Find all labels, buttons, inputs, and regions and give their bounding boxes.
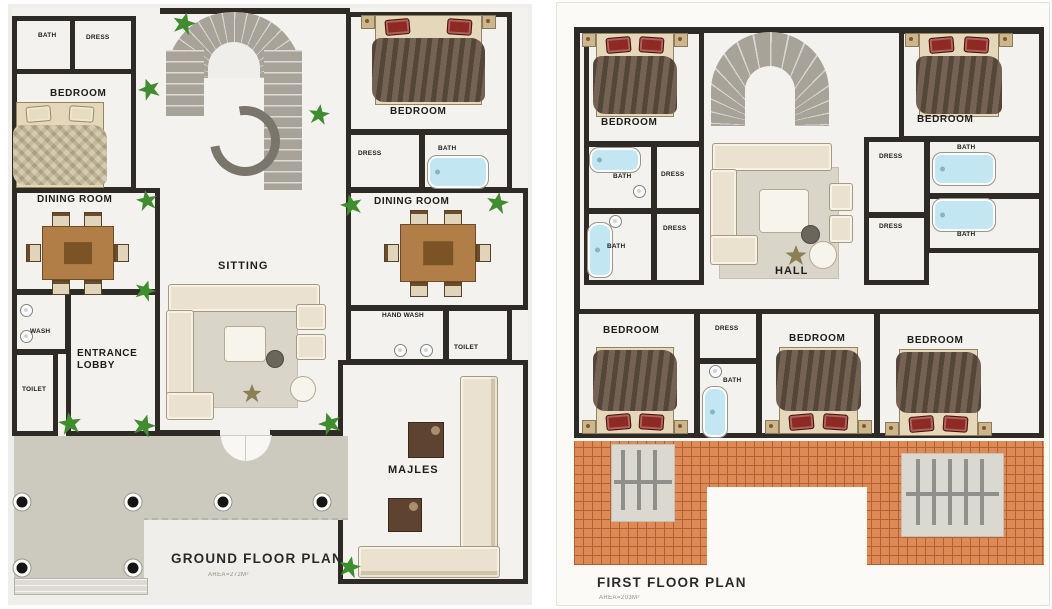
room-label-dress: DRESS — [715, 325, 738, 332]
room-dress-right — [346, 130, 424, 192]
room-dress-top-left — [70, 16, 136, 74]
room-label-bath: BATH — [607, 243, 625, 250]
pillow-icon — [384, 18, 410, 36]
room-label-hand-wash: HAND WASH — [382, 312, 424, 319]
room-label-hall: HALL — [775, 265, 808, 277]
pillow-icon — [638, 36, 664, 54]
pillow-icon — [605, 413, 631, 431]
room-dress-left-2 — [652, 209, 704, 285]
first-floor-plan: BEDROOM BATH DRESS BATH DRESS HALL BEDRO… — [556, 2, 1050, 606]
floor-plans-page: BATH DRESS BEDROOM DINING ROOM WASH ENTR… — [0, 0, 1052, 609]
bed-icon — [596, 33, 674, 117]
pillow-icon — [605, 36, 631, 54]
ground-floor-plan: BATH DRESS BEDROOM DINING ROOM WASH ENTR… — [8, 4, 532, 605]
staircase-icon — [711, 32, 829, 128]
sink-icon — [633, 185, 646, 198]
column — [125, 494, 142, 511]
room-label-dining-room: DINING ROOM — [374, 196, 450, 207]
toilet-icon — [633, 231, 650, 244]
bathtub-icon — [588, 223, 612, 277]
nightstand-icon — [582, 420, 596, 434]
pillow-icon — [446, 18, 472, 36]
first-floor-title: FIRST FLOOR PLAN — [597, 575, 747, 590]
pillow-icon — [908, 415, 934, 433]
room-label-bedroom: BEDROOM — [601, 117, 657, 128]
room-label-dress: DRESS — [86, 34, 109, 41]
railing-crossbar-icon — [906, 492, 999, 496]
nightstand-icon — [978, 422, 992, 436]
ground-floor-title: GROUND FLOOR PLAN — [171, 551, 343, 566]
room-label-bedroom: BEDROOM — [907, 335, 963, 346]
bed-icon — [899, 349, 978, 436]
nightstand-icon — [999, 33, 1013, 47]
column — [14, 560, 31, 577]
bed-icon — [375, 15, 482, 105]
blanket-icon — [916, 56, 1002, 114]
toilet-icon — [20, 48, 37, 61]
pillow-icon — [638, 413, 664, 431]
sink-icon — [709, 365, 722, 378]
pillow-icon — [928, 36, 954, 54]
bed-icon — [16, 102, 104, 188]
porch-left-wing — [14, 436, 144, 578]
nightstand-icon — [361, 15, 375, 29]
room-label-bedroom: BEDROOM — [50, 88, 106, 99]
column — [314, 494, 331, 511]
room-label-dress: DRESS — [358, 150, 381, 157]
nightstand-icon — [885, 422, 899, 436]
bathtub-icon — [703, 387, 727, 437]
blanket-icon — [776, 350, 861, 411]
column — [14, 494, 31, 511]
toilet-icon — [472, 324, 489, 337]
nightstand-icon — [582, 33, 596, 47]
nightstand-icon — [765, 420, 779, 434]
pillow-icon — [963, 36, 989, 54]
sink-icon — [20, 304, 33, 317]
room-wash — [12, 290, 70, 354]
bathtub-icon — [428, 156, 488, 188]
blanket-icon — [372, 38, 485, 102]
pillow-icon — [25, 105, 51, 123]
toilet-icon — [999, 151, 1016, 164]
sink-icon — [609, 215, 622, 228]
railing-crossbar-icon — [614, 480, 671, 484]
room-label-bath: BATH — [438, 145, 456, 152]
first-floor-area: AREA=203M² — [599, 595, 640, 601]
room-label-sitting: SITTING — [218, 260, 268, 272]
nightstand-icon — [858, 420, 872, 434]
sink-icon — [420, 344, 433, 357]
blanket-icon — [593, 56, 677, 114]
room-label-bedroom: BEDROOM — [390, 106, 446, 117]
bed-icon — [779, 347, 858, 434]
room-bath-top-left — [12, 16, 75, 74]
room-label-dress: DRESS — [879, 223, 902, 230]
nightstand-icon — [482, 15, 496, 29]
pillow-icon — [822, 413, 848, 431]
blanket-icon — [593, 350, 677, 411]
room-label-dress: DRESS — [661, 171, 684, 178]
room-dress-middle — [695, 309, 761, 363]
blanket-icon — [13, 125, 107, 185]
bed-icon — [596, 347, 674, 434]
room-dress-right-1 — [864, 137, 929, 217]
sink-icon — [394, 344, 407, 357]
pillow-icon — [68, 105, 94, 123]
toilet-icon — [593, 187, 610, 200]
room-label-dress: DRESS — [663, 225, 686, 232]
room-label-bath: BATH — [723, 377, 741, 384]
staircase-icon — [166, 6, 306, 190]
pillow-icon — [788, 413, 814, 431]
balcony-railing — [611, 444, 675, 522]
column — [125, 560, 142, 577]
bathtub-icon — [933, 153, 995, 185]
nightstand-icon — [905, 33, 919, 47]
toilet-icon — [19, 398, 36, 411]
balcony-railing — [901, 453, 1004, 537]
toilet-icon — [739, 411, 752, 428]
entrance-steps — [14, 578, 148, 595]
room-label-bedroom: BEDROOM — [603, 325, 659, 336]
room-label-bath: BATH — [957, 231, 975, 238]
room-label-toilet: TOILET — [22, 386, 46, 393]
balcony-notch — [707, 487, 867, 565]
room-label-majles: MAJLES — [388, 464, 439, 476]
column — [215, 494, 232, 511]
blanket-icon — [896, 352, 981, 413]
bed-icon — [919, 33, 999, 117]
room-label-bath: BATH — [613, 173, 631, 180]
pillow-icon — [942, 415, 968, 433]
toilet-icon — [488, 150, 505, 163]
room-label-dining-room: DINING ROOM — [37, 194, 113, 205]
room-label-bedroom: BEDROOM — [917, 114, 973, 125]
toilet-icon — [999, 219, 1016, 232]
room-label-dress: DRESS — [879, 153, 902, 160]
room-label-bedroom: BEDROOM — [789, 333, 845, 344]
room-label-entrance-lobby: ENTRANCE LOBBY — [77, 348, 159, 372]
room-label-bath: BATH — [957, 144, 975, 151]
room-toilet-bottom-left — [12, 350, 58, 436]
room-label-toilet: TOILET — [454, 344, 478, 351]
nightstand-icon — [674, 420, 688, 434]
ground-floor-area: AREA=272M² — [208, 572, 249, 578]
bathtub-icon — [590, 148, 640, 172]
room-label-wash: WASH — [30, 328, 50, 335]
bathtub-icon — [933, 199, 995, 231]
nightstand-icon — [674, 33, 688, 47]
room-label-bath: BATH — [38, 32, 56, 39]
